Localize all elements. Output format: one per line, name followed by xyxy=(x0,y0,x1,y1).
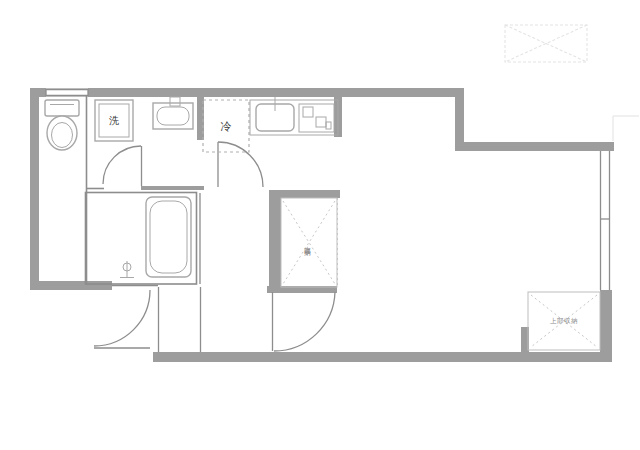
wall-bottom-left xyxy=(30,281,112,290)
interior-walls xyxy=(141,88,529,352)
door-swing-arc xyxy=(274,292,335,351)
shower-faucet-icon xyxy=(120,261,134,278)
floor-plan-page: 洗 冷 上部収納 上部収納 xyxy=(0,0,640,450)
bathroom-door xyxy=(103,146,142,186)
bathtub-outer xyxy=(146,197,191,277)
washer-pan xyxy=(95,100,133,141)
room-door xyxy=(273,292,336,351)
wall-upper-right xyxy=(455,142,614,151)
door-swing-arc xyxy=(94,290,150,346)
closet-middle xyxy=(281,198,338,287)
entrance-door xyxy=(94,290,150,348)
wall-right-lower xyxy=(600,290,612,362)
toilet-icon xyxy=(45,100,79,150)
wall-bottom xyxy=(153,352,612,362)
kitchen-counter xyxy=(250,97,338,135)
stove-burner xyxy=(316,117,326,127)
stove-burner xyxy=(303,107,313,117)
refrigerator-space xyxy=(203,100,249,152)
floor-plan-drawing xyxy=(0,0,640,450)
wall-washroom-bath xyxy=(141,186,204,190)
wall-top xyxy=(30,88,463,97)
wall-left xyxy=(30,88,39,290)
door-swing-arc xyxy=(103,146,141,184)
window-top-left xyxy=(46,89,88,97)
washing-machine-icon xyxy=(95,100,133,141)
door-swing-arc xyxy=(218,142,263,187)
closet-outline xyxy=(528,292,600,350)
toilet-tank xyxy=(45,100,79,116)
wall-step-vertical xyxy=(455,88,464,151)
closet-wall-left xyxy=(269,190,281,290)
window-right xyxy=(600,151,610,290)
balcony-storage-faint xyxy=(505,25,639,141)
closet-bottom-right xyxy=(528,292,600,350)
washbasin-icon xyxy=(153,97,193,129)
closet-x-line xyxy=(283,201,335,284)
washroom-door xyxy=(218,142,263,187)
closet-x-line xyxy=(283,201,335,284)
bathtub-icon xyxy=(146,197,191,277)
closet-wall-top xyxy=(269,190,340,198)
stove-grill xyxy=(326,122,331,129)
